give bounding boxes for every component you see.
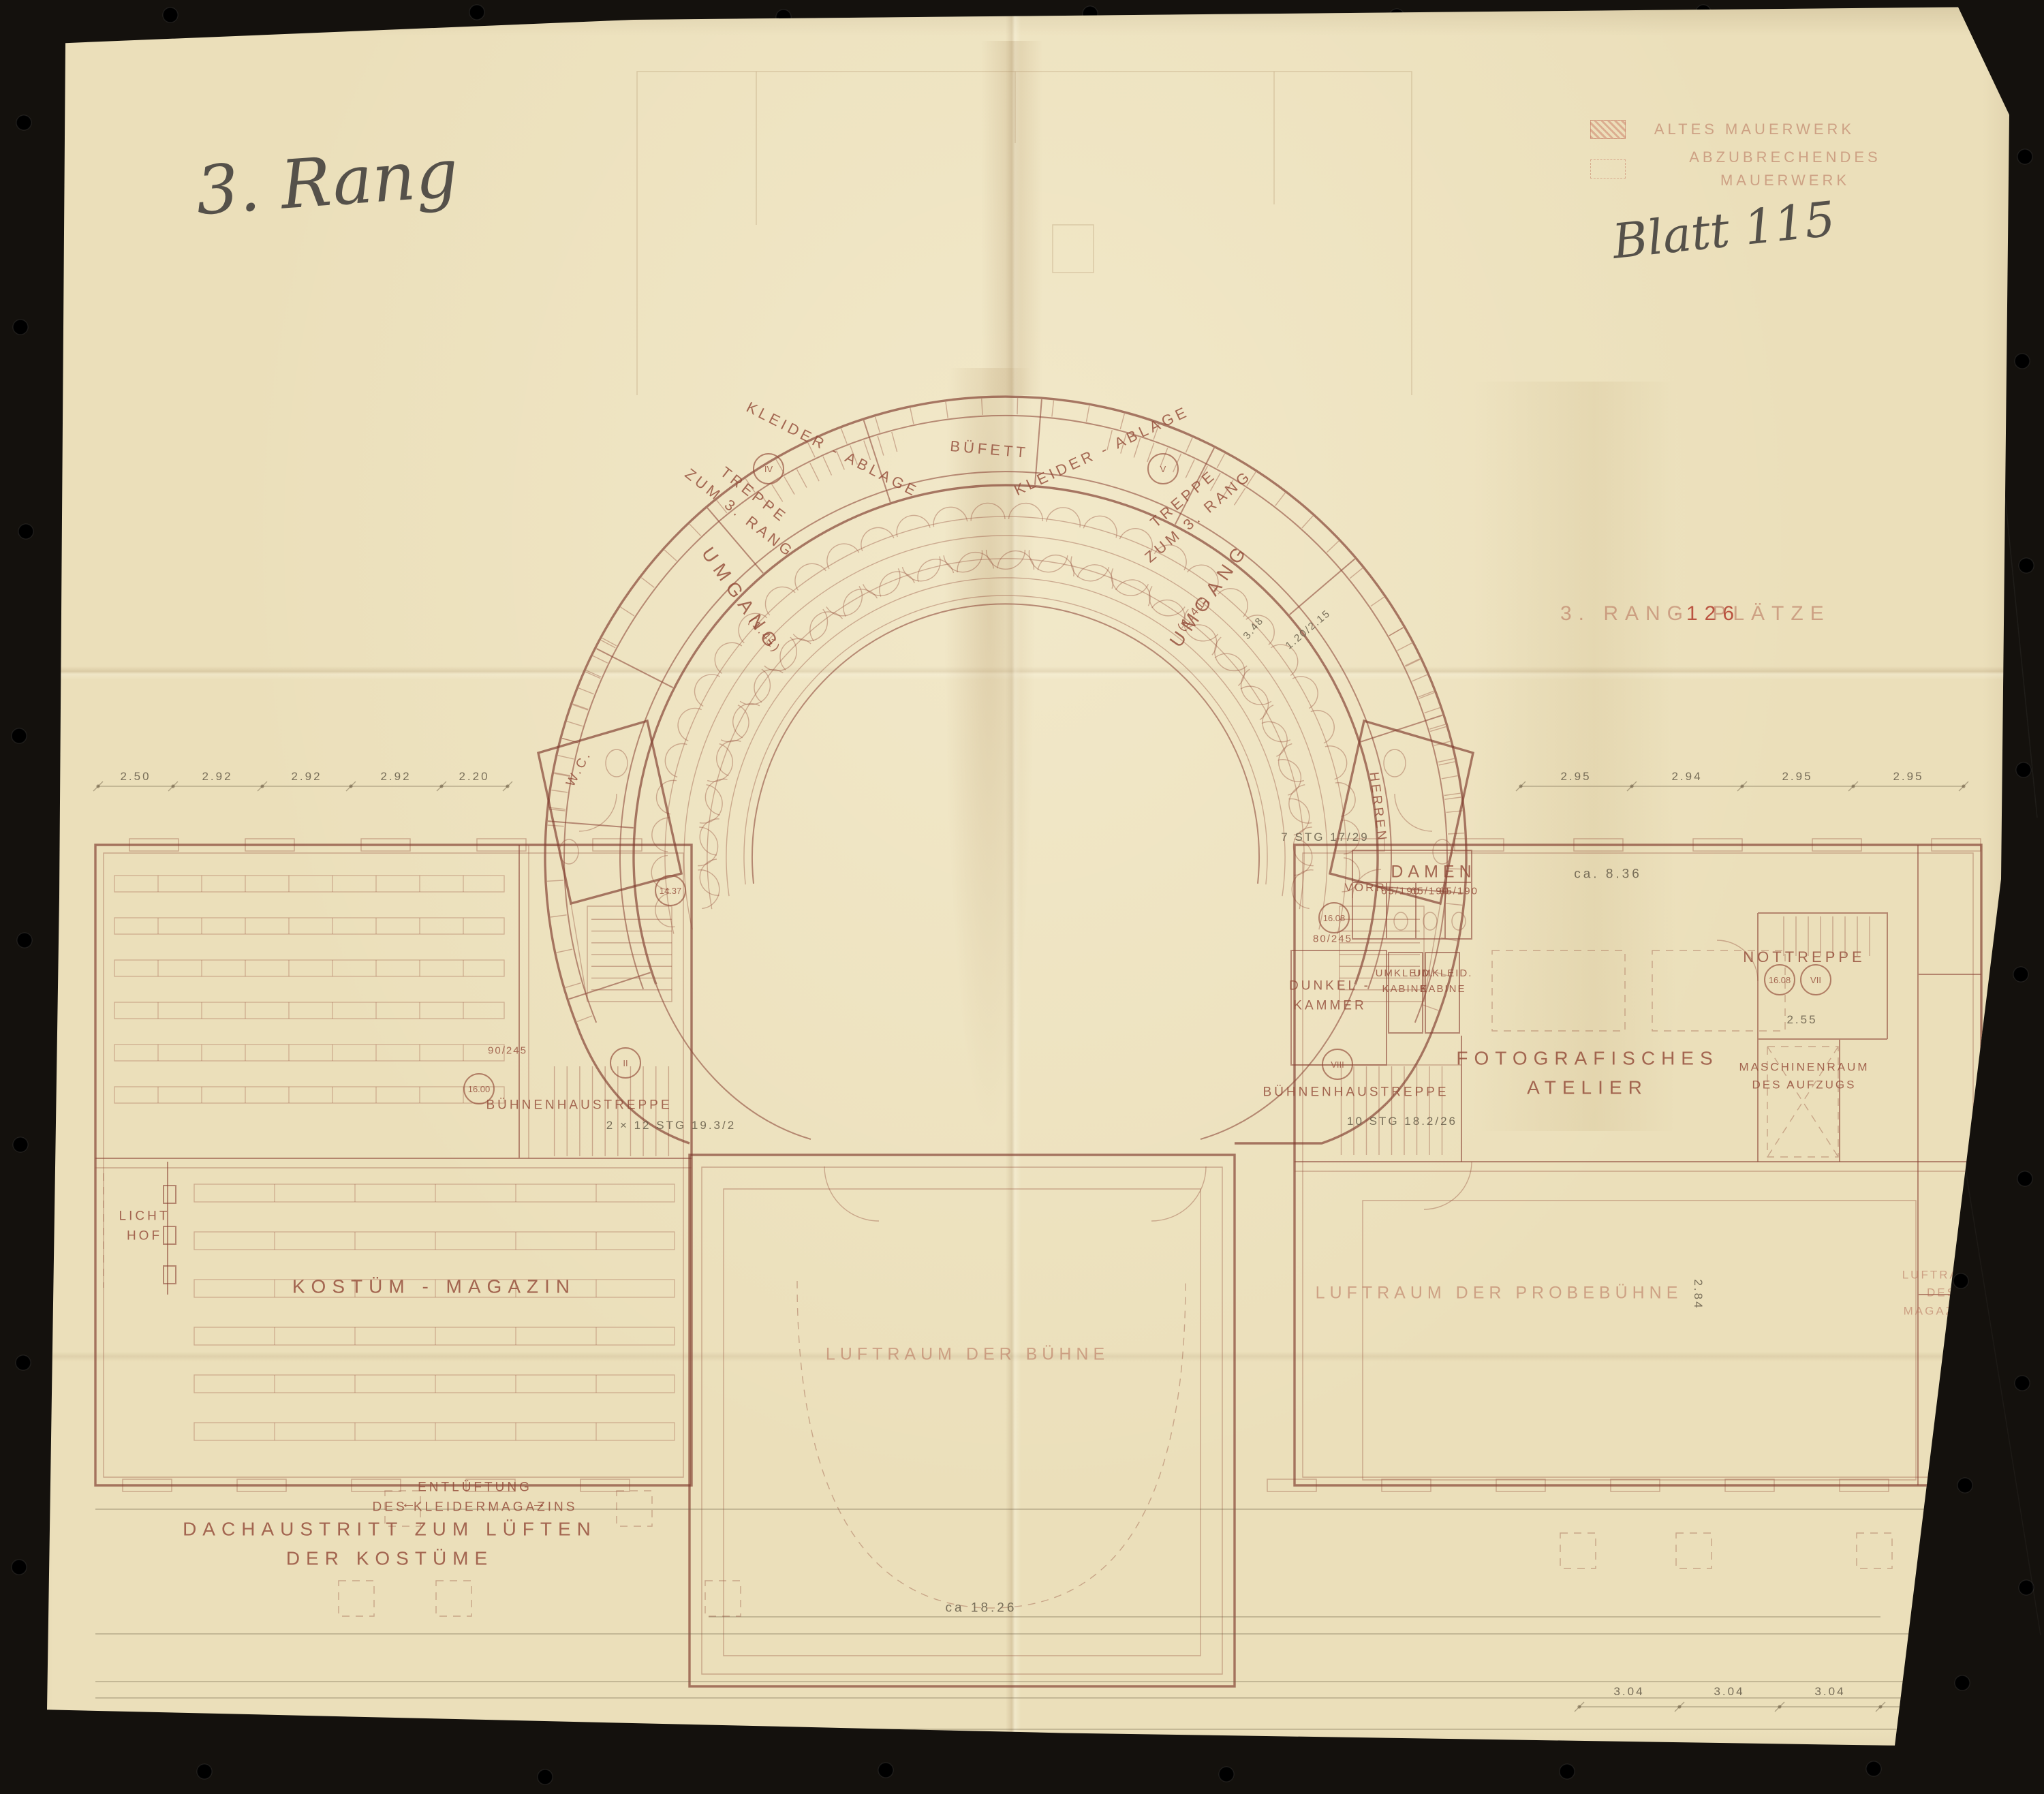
plan-geometry [593, 656, 608, 664]
plan-geometry [1677, 1705, 1681, 1708]
plan-geometry [982, 399, 982, 415]
mount-hole [12, 1560, 27, 1575]
mount-hole [13, 1137, 28, 1152]
plan-geometry [548, 825, 564, 826]
plan-geometry [1444, 793, 1461, 795]
plan-geometry [573, 704, 589, 709]
plan-geometry [1442, 776, 1458, 779]
plan-geometry [1577, 1705, 1581, 1708]
dim-chain-left-3: 2.92 [380, 768, 411, 786]
dim-chain-bottom-2: 3.04 [1814, 1683, 1845, 1701]
plan-geometry [547, 880, 563, 881]
plan-geometry [260, 784, 264, 788]
mount-hole [18, 524, 33, 539]
mount-hole [16, 115, 31, 130]
mount-hole [1955, 1675, 1970, 1690]
plan-geometry [810, 463, 819, 481]
plan-geometry [577, 1016, 592, 1022]
plan-geometry [795, 563, 826, 590]
room-label-kostuem-magazin: KOSTÜM - MAGAZIN [292, 1271, 576, 1301]
mount-hole [2019, 558, 2034, 573]
stair-note-7stg: 7 STG 17/29 [1281, 829, 1369, 846]
dim-corridor-width: ca. 8.36 [1574, 864, 1642, 884]
plan-geometry [690, 524, 701, 536]
plan-geometry [946, 402, 948, 418]
plan-geometry [1444, 797, 1461, 799]
mount-hole [538, 1769, 553, 1784]
caption-rang: 3. RANG [1560, 598, 1690, 630]
mount-hole [2013, 967, 2028, 982]
mount-hole [1219, 1767, 1234, 1782]
marker-roman-7: VII [1800, 964, 1831, 995]
plan-geometry [194, 1375, 675, 1393]
plan-geometry [1397, 643, 1412, 651]
mount-hole [469, 5, 484, 20]
plan-geometry [1279, 744, 1304, 782]
plan-geometry [700, 785, 722, 823]
plan-geometry [784, 477, 794, 495]
plan-geometry [1429, 724, 1445, 729]
plan-geometry [1289, 785, 1312, 823]
legend-label-demolish-masonry: ABZUBRECHENDES MAUERWERK [1656, 146, 1915, 192]
mount-hole [16, 1355, 31, 1370]
plan-geometry [597, 649, 673, 687]
marker-level-1608b: 16.08 [1764, 964, 1795, 995]
room-label-maschinenraum: MASCHINENRAUM DES AUFZUGS [1739, 1059, 1869, 1095]
plan-geometry [1335, 783, 1355, 816]
plan-geometry [1405, 659, 1420, 666]
plan-geometry [1438, 758, 1455, 762]
plan-geometry [506, 784, 509, 788]
mount-hole [2016, 762, 2031, 777]
plan-geometry [1425, 708, 1440, 713]
dim-stage-width: ca 18.26 [946, 1598, 1017, 1618]
plan-geometry [665, 516, 1346, 933]
plan-geometry [1878, 1705, 1882, 1708]
mount-hole [2017, 149, 2032, 164]
plan-geometry [96, 784, 99, 788]
plan-geometry [1446, 903, 1462, 906]
plan-geometry [876, 417, 880, 433]
dim-284: 2.84 [1689, 1279, 1707, 1310]
mount-hole [17, 933, 32, 948]
plan-geometry [797, 469, 807, 487]
plan-geometry [1327, 541, 1339, 553]
mount-hole [878, 1763, 893, 1778]
plan-geometry [194, 1423, 675, 1440]
room-label-licht-hof: LICHT HOF [119, 1207, 170, 1247]
plan-geometry [551, 790, 568, 793]
plan-geometry [1371, 597, 1384, 606]
plan-geometry [1111, 568, 1148, 596]
plan-geometry [957, 553, 993, 572]
marker-level-1600: 16.00 [463, 1073, 495, 1104]
marker-roman-4: IV [753, 453, 784, 484]
plan-geometry [114, 960, 504, 976]
plan-geometry [1406, 660, 1421, 666]
stair-note-10stg: 10 STG 18.2/26 [1347, 1113, 1457, 1130]
plan-geometry [641, 578, 654, 588]
mount-hole [13, 320, 28, 335]
plan-geometry [1038, 555, 1074, 576]
room-label-luftraum-probebuehne: LUFTRAUM DER PROBEBÜHNE [1316, 1280, 1683, 1307]
plan-geometry [827, 544, 859, 569]
mount-hole [2017, 1171, 2032, 1186]
marker-level-1608a: 16.08 [1318, 902, 1350, 933]
mount-hole [2015, 1376, 2030, 1391]
mount-hole [1866, 1761, 1881, 1776]
plan-geometry [439, 784, 443, 788]
room-label-fotografisches-atelier: FOTOGRAFISCHES ATELIER [1456, 1044, 1718, 1103]
marker-roman-5: V [1147, 453, 1179, 484]
marker-roman-8: VIII [1322, 1049, 1353, 1080]
plan-geometry [1047, 508, 1080, 527]
plan-geometry [586, 670, 601, 677]
legend-swatch-old-masonry [1590, 120, 1626, 139]
plan-geometry [971, 503, 1005, 521]
dim-chain-bottom-1: 3.04 [1714, 1683, 1744, 1701]
plan-geometry [892, 432, 897, 452]
scanned-drawing-scene: 3. Rang Blatt 115 ALTES MAUERWERK ABZUBR… [0, 0, 2044, 1794]
paper-sheet: 3. Rang Blatt 115 ALTES MAUERWERK ABZUBR… [0, 0, 2044, 1794]
plan-geometry [695, 675, 720, 707]
plan-geometry [707, 744, 732, 782]
plan-geometry [1740, 784, 1744, 788]
plan-geometry [1311, 711, 1334, 743]
dim-door-90: 90/245 [488, 1042, 527, 1058]
dim-chain-right-0: 2.95 [1560, 768, 1591, 786]
plan-geometry [114, 1087, 504, 1103]
room-label-dunkelkammer: DUNKEL - KAMMER [1289, 976, 1371, 1017]
dim-chain-bottom-0: 3.04 [1613, 1683, 1644, 1701]
plan-geometry [114, 1002, 504, 1019]
plan-geometry [910, 408, 914, 424]
room-label-buehnenhaustreppe-right: BÜHNENHAUSTREPPE [1263, 1082, 1449, 1102]
plan-geometry [551, 915, 567, 917]
plan-geometry [194, 1327, 675, 1345]
dim-chain-left-4: 2.20 [459, 768, 489, 786]
plan-geometry [700, 819, 719, 855]
dim-chain-left-0: 2.50 [120, 768, 151, 786]
plan-geometry [1186, 437, 1192, 452]
plan-geometry [987, 550, 1025, 569]
plan-geometry [933, 507, 967, 527]
plan-geometry [1962, 784, 1965, 788]
plan-geometry [557, 949, 573, 953]
dim-chain-right-1: 2.94 [1671, 768, 1702, 786]
plan-geometry [578, 688, 593, 694]
plan-geometry [194, 1184, 675, 1202]
plan-geometry [902, 557, 940, 581]
legend-swatch-demolish-masonry [1590, 159, 1626, 179]
mount-hole [197, 1764, 212, 1779]
arrow-right-icon: → [531, 1491, 550, 1515]
mount-hole [1560, 1764, 1575, 1779]
plan-geometry [548, 821, 634, 828]
plan-geometry [1389, 628, 1404, 636]
plan-geometry [1630, 784, 1633, 788]
plan-geometry [1778, 1705, 1781, 1708]
legend-label-old-masonry: ALTES MAUERWERK [1654, 118, 1855, 141]
plan-geometry [1430, 727, 1446, 732]
plan-geometry [1071, 557, 1109, 581]
note-dachaustritt: DACHAUSTRITT ZUM LÜFTEN DER KOSTÜME [183, 1515, 597, 1574]
mount-hole [12, 728, 27, 743]
plan-geometry [114, 876, 504, 892]
room-label-nottreppe: NOTTREPPE [1743, 946, 1865, 969]
plan-geometry [1302, 516, 1313, 528]
plan-geometry [721, 705, 749, 742]
room-label-damen: DAMEN [1391, 859, 1476, 886]
plan-geometry [878, 436, 884, 456]
plan-geometry [1851, 784, 1855, 788]
dim-255: 2.55 [1786, 1011, 1817, 1029]
plan-geometry [1009, 504, 1043, 521]
plan-geometry [1439, 762, 1455, 765]
dim-chain-left-2: 2.92 [291, 768, 322, 786]
mount-hole [2019, 1580, 2034, 1595]
arrow-left-icon: ← [401, 1491, 420, 1515]
plan-geometry [567, 722, 583, 726]
plan-geometry [634, 485, 1378, 985]
caption-seats-word: PLÄTZE [1712, 598, 1830, 630]
room-label-umkleide-2: UMKLEID. KABINE [1414, 965, 1473, 997]
plan-geometry [944, 550, 982, 572]
plan-geometry [1052, 401, 1054, 417]
plan-geometry [740, 669, 770, 705]
plan-geometry [1029, 550, 1067, 572]
plan-geometry [621, 607, 634, 616]
room-label-buehnenhaustreppe-left: BÜHNENHAUSTREPPE [486, 1095, 672, 1115]
plan-geometry [1087, 405, 1089, 422]
plan-geometry [572, 705, 588, 710]
mount-hole [1957, 1478, 1972, 1493]
plan-walls [95, 721, 1981, 1746]
plan-geometry [1350, 568, 1363, 578]
caption-separator: · [1673, 598, 1686, 630]
plan-geometry [678, 709, 702, 741]
dim-chain-left-1: 2.92 [202, 768, 232, 786]
plan-geometry [114, 918, 504, 934]
plan-geometry [1017, 398, 1018, 414]
plan-geometry [566, 983, 581, 988]
plan-geometry [349, 784, 352, 788]
old-building-outline [637, 72, 1412, 395]
dim-chain-right-2: 2.95 [1782, 768, 1812, 786]
plan-geometry [585, 672, 600, 679]
plan-geometry [114, 1045, 504, 1061]
plan-geometry [171, 784, 174, 788]
mount-hole [2015, 354, 2030, 369]
plan-geometry [652, 818, 670, 852]
plan-geometry [754, 670, 783, 702]
marker-level-1437: 14.37 [655, 875, 686, 906]
plan-geometry [1412, 675, 1427, 681]
mount-hole [1953, 1273, 1968, 1288]
plan-geometry [684, 536, 1327, 929]
marker-roman-2: II [610, 1047, 641, 1079]
plan-geometry [664, 550, 677, 561]
plan-geometry [861, 527, 894, 551]
dim-chain-right-3: 2.95 [1893, 768, 1923, 786]
room-label-luftraum-buehne: LUFTRAUM DER BÜHNE [826, 1342, 1109, 1368]
dim-door-65-3: 65/190 [1439, 883, 1478, 899]
plan-geometry [1292, 677, 1318, 709]
plan-geometry [194, 1232, 675, 1250]
plan-geometry [700, 859, 719, 895]
mount-hole [163, 7, 178, 22]
stair-note-2x12stg: 2 × 12 STG 19.3/2 [606, 1117, 736, 1134]
plan-geometry [558, 756, 574, 759]
plan-geometry [1275, 493, 1286, 506]
plan-geometry [1519, 784, 1522, 788]
